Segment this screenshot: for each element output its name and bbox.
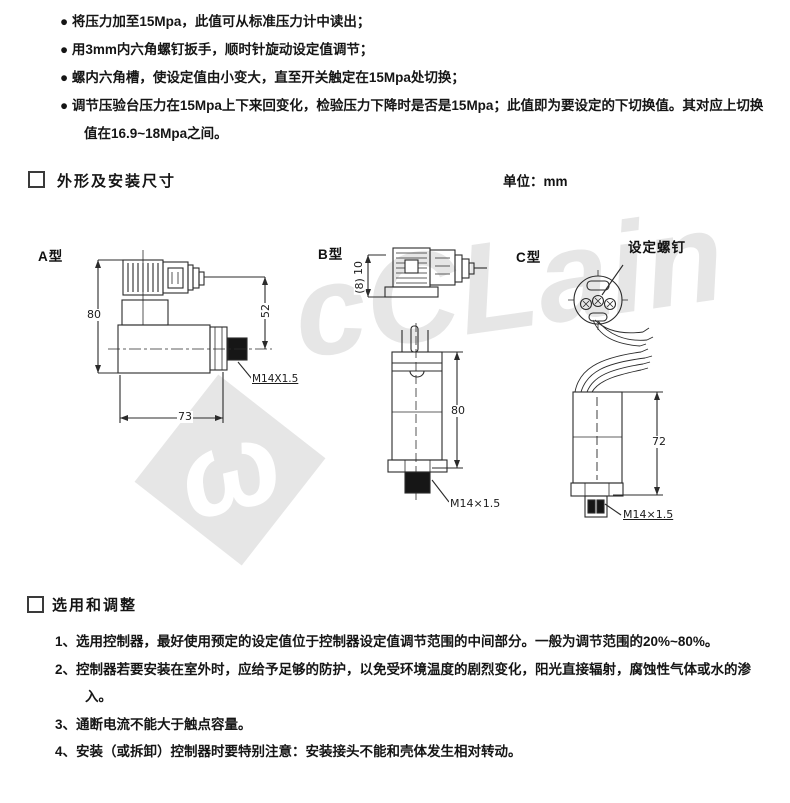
bullet-item: 将压力加至15Mpa，此值可从标准压力计中读出； (60, 8, 768, 36)
numbered-item: 4、安装（或拆卸）控制器时要特别注意：安装接头不能和壳体发生相对转动。 (55, 738, 771, 766)
type-a-label: A型 (38, 245, 63, 265)
adjustment-numbered-list: 1、选用控制器，最好使用预定的设定值位于控制器设定值调节范围的中间部分。一般为调… (55, 628, 771, 766)
numbered-item: 2、控制器若要安装在室外时，应给予足够的防护，以免受环境温度的剧烈变化，阳光直接… (55, 656, 771, 711)
type-a-drawing: A型 80 52 73 M14X1.5 (30, 245, 310, 460)
dim-label-52: 52 (260, 303, 272, 319)
dim-label-10: 10 (353, 260, 365, 276)
numbered-item: 3、通断电流不能大于触点容量。 (55, 711, 771, 739)
type-c-label: C型 (516, 246, 541, 266)
datasheet-page: { "document": { "unit_label": "单位：mm", "… (0, 0, 790, 803)
bullet-item: 螺内六角槽，使设定值由小变大，直至开关触定在15Mpa处切换； (60, 64, 768, 92)
dim-label-80: 80 (450, 405, 466, 417)
dim-label-80: 80 (86, 309, 102, 321)
type-a-outline-svg (30, 245, 310, 460)
dim-label-73: 73 (177, 411, 193, 423)
thread-label: M14X1.5 (251, 373, 299, 385)
dim-label-8: (8) (354, 277, 366, 295)
dim-label-72: 72 (651, 436, 667, 448)
unit-label: 单位：mm (503, 170, 568, 190)
thread-label: M14×1.5 (449, 498, 501, 510)
procedure-bullet-list: 将压力加至15Mpa，此值可从标准压力计中读出； 用3mm内六角螺钉扳手，顺时针… (60, 8, 768, 148)
section-title-dimensions: 外形及安装尺寸 (57, 170, 176, 191)
numbered-item: 1、选用控制器，最好使用预定的设定值位于控制器设定值调节范围的中间部分。一般为调… (55, 628, 771, 656)
type-c-outline-svg (505, 232, 790, 532)
setting-screw-label: 设定螺钉 (628, 236, 686, 256)
type-b-label: B型 (318, 243, 343, 263)
section-marker-icon (28, 171, 45, 188)
section-marker-icon (27, 596, 44, 613)
type-c-drawing: C型 设定螺钉 72 M14×1.5 (505, 232, 790, 532)
bullet-item: 用3mm内六角螺钉扳手，顺时针旋动设定值调节； (60, 36, 768, 64)
section-title-adjustment: 选用和调整 (52, 594, 137, 615)
bullet-item: 调节压验台压力在15Mpa上下来回变化，检验压力下降时是否是15Mpa；此值即为… (60, 92, 768, 148)
thread-label: M14×1.5 (622, 509, 674, 521)
